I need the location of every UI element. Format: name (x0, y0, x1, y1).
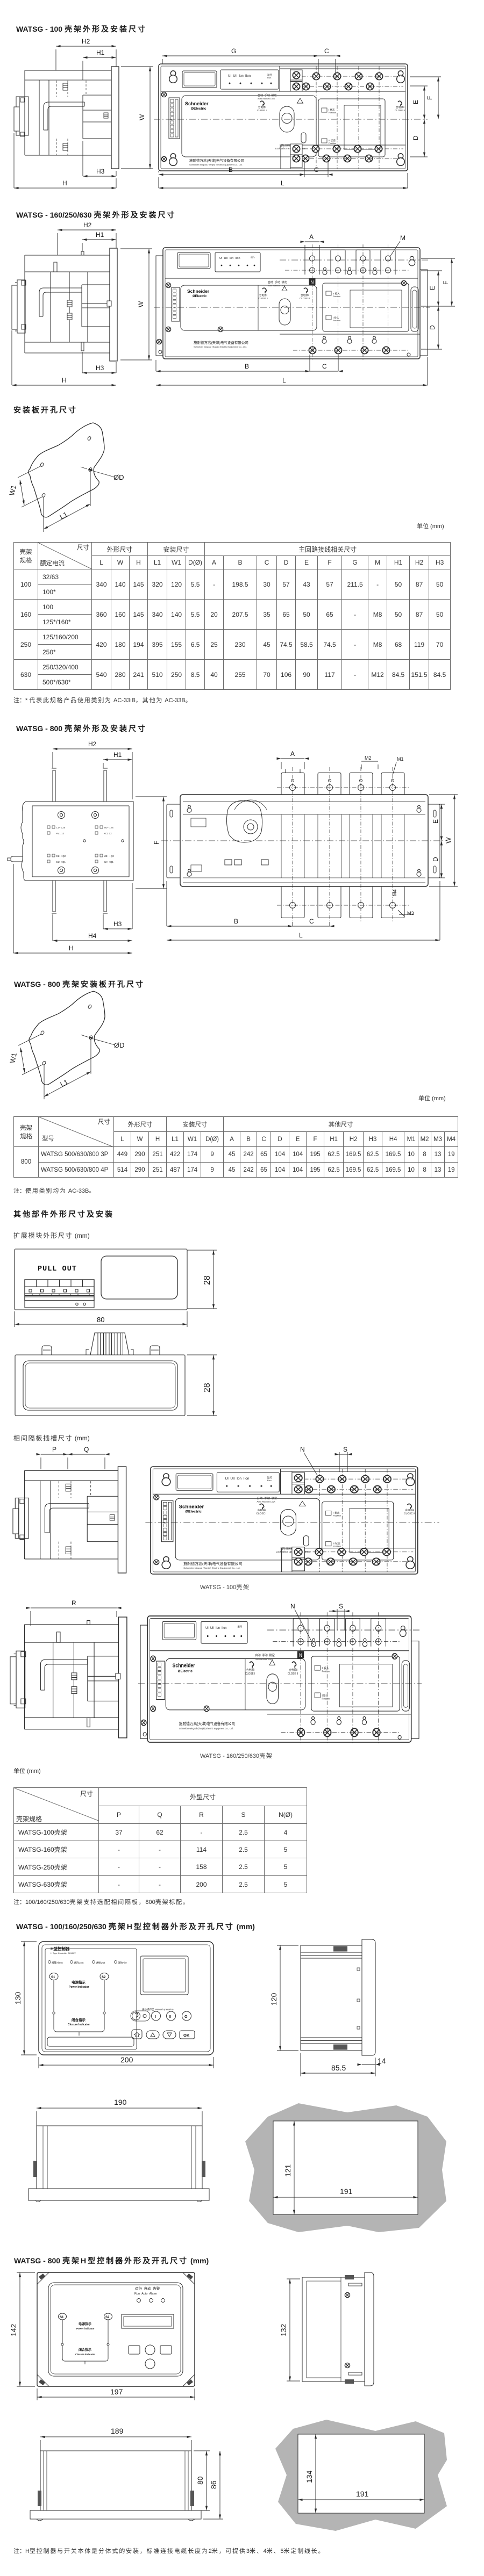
svg-text:14: 14 (378, 2057, 386, 2065)
svg-text:手动操作区 Manual operation: 手动操作区 Manual operation (142, 2008, 174, 2011)
svg-text:142: 142 (9, 2324, 18, 2336)
svg-text:132: 132 (279, 2324, 288, 2336)
svg-text:O: O (184, 2015, 188, 2019)
svg-text:电源指示: 电源指示 (79, 2322, 91, 2326)
svg-text:134: 134 (305, 2470, 314, 2483)
svg-text:H Type Controller AC400V: H Type Controller AC400V (51, 1952, 76, 1954)
svg-text:80: 80 (196, 2476, 204, 2485)
svg-text:报警Alarm: 报警Alarm (52, 1961, 63, 1965)
svg-text:130: 130 (13, 1991, 22, 2004)
svg-text:121: 121 (283, 2164, 292, 2177)
svg-text:197: 197 (110, 2387, 123, 2396)
svg-text:191: 191 (356, 2490, 369, 2498)
svg-text:闭合指示: 闭合指示 (79, 2348, 91, 2352)
svg-text:电源指示: 电源指示 (72, 1980, 86, 1985)
svg-text:190: 190 (114, 2098, 127, 2106)
svg-text:进线Quit: 进线Quit (96, 1961, 105, 1965)
svg-text:运行 自动 告警: 运行 自动 告警 (135, 2286, 160, 2291)
svg-text:S2: S2 (105, 2316, 110, 2319)
svg-text:OK: OK (183, 2033, 190, 2038)
svg-text:200: 200 (120, 2055, 133, 2064)
svg-text:Power indicator: Power indicator (76, 2327, 95, 2330)
svg-text:S1: S1 (60, 2316, 64, 2319)
svg-text:Power Indicator: Power Indicator (69, 1986, 89, 1989)
svg-text:86: 86 (209, 2480, 218, 2489)
svg-text:191: 191 (340, 2187, 353, 2196)
svg-text:189: 189 (111, 2427, 124, 2435)
svg-text:120: 120 (269, 1993, 278, 2005)
svg-text:H型控制器: H型控制器 (51, 1946, 70, 1951)
svg-text:85.5: 85.5 (331, 2063, 346, 2072)
svg-text:消防Fire: 消防Fire (118, 1961, 127, 1965)
svg-text:II: II (169, 2015, 171, 2019)
svg-text:S2: S2 (102, 1976, 106, 1979)
svg-text:闭合指示: 闭合指示 (72, 2017, 86, 2022)
svg-text:Closure Indicator: Closure Indicator (68, 2023, 90, 2026)
svg-text:通讯Com: 通讯Com (74, 1961, 84, 1965)
svg-text:I: I (155, 2015, 156, 2019)
svg-text:S1: S1 (51, 1976, 55, 1979)
svg-text:Run Auto Alarm: Run Auto Alarm (134, 2292, 157, 2296)
svg-text:Closure indicator: Closure indicator (75, 2353, 95, 2356)
